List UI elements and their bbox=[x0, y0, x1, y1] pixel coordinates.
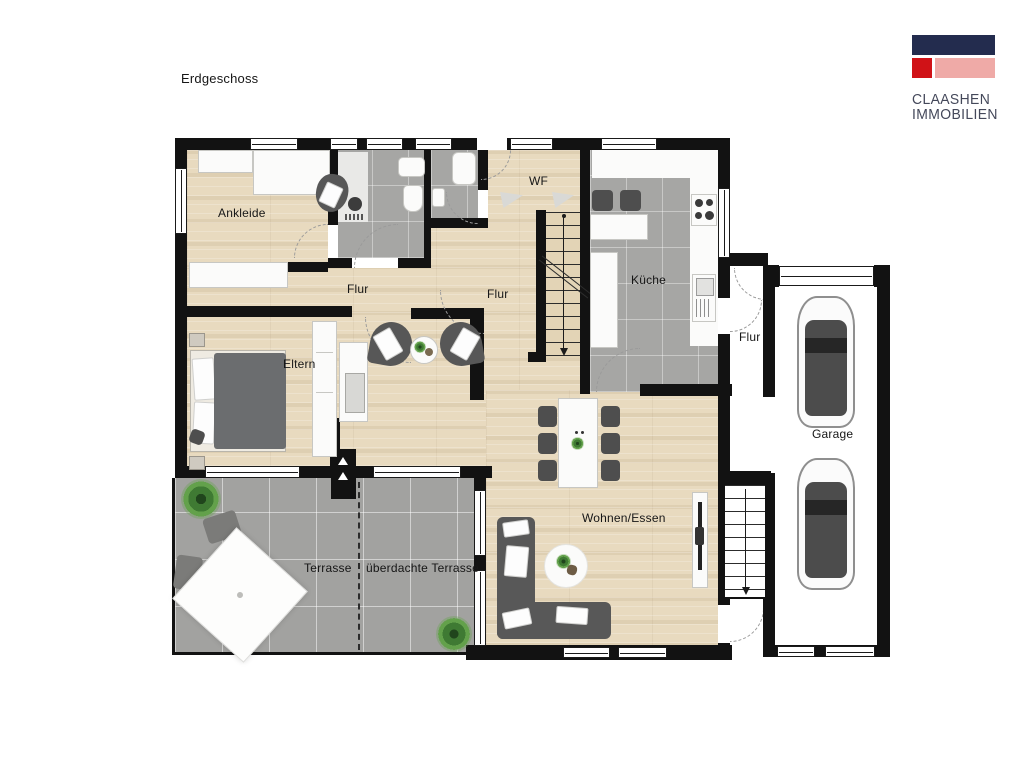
nightstand bbox=[189, 456, 205, 470]
staircase-exterior bbox=[723, 483, 767, 599]
room-label-eltern: Eltern bbox=[283, 357, 316, 371]
window-living-south2 bbox=[618, 647, 667, 658]
dining-plant-icon bbox=[571, 437, 584, 450]
car-cabin bbox=[805, 320, 847, 416]
window-top-bath1b bbox=[366, 138, 403, 150]
flur-sideboard bbox=[189, 262, 288, 288]
sofa-pillow bbox=[504, 545, 530, 578]
bathtub-bath2 bbox=[452, 152, 476, 185]
dining-chair bbox=[538, 406, 557, 427]
sink-drainer bbox=[696, 299, 712, 317]
sink-bath1 bbox=[398, 157, 425, 177]
door-gap-corridor-south bbox=[718, 605, 730, 643]
car-top-view bbox=[797, 458, 855, 590]
room-label-terrasse: Terrasse bbox=[304, 561, 352, 575]
room-label-flur-hall: Flur bbox=[487, 287, 508, 301]
logo-text-line2: IMMOBILIEN bbox=[912, 107, 998, 122]
table-dot bbox=[581, 431, 584, 434]
logo-text-line1: CLAASHEN bbox=[912, 92, 990, 107]
wall-bath2-bottom bbox=[424, 218, 488, 228]
wall-kitchen-left bbox=[580, 150, 590, 394]
ext-stair-arrow-down-icon bbox=[742, 587, 750, 595]
door-arc-corridor-south bbox=[730, 608, 764, 642]
shower-head-icon bbox=[348, 197, 362, 211]
car-windshield bbox=[805, 338, 847, 353]
door-arc-corridor bbox=[730, 300, 762, 332]
window-top-wf bbox=[510, 138, 553, 150]
terrace-roof-edge-line bbox=[358, 482, 360, 650]
page-title: Erdgeschoss bbox=[181, 71, 258, 86]
wall-stairs-landing bbox=[528, 352, 546, 362]
window-top-kitchen bbox=[601, 138, 657, 150]
wall-ext-stairs-top bbox=[721, 471, 771, 483]
terrace-plant-icon bbox=[436, 616, 472, 652]
cooktop bbox=[691, 194, 717, 226]
company-logo: CLAASHEN IMMOBILIEN bbox=[912, 35, 997, 125]
tv-center bbox=[695, 527, 704, 545]
dining-chair bbox=[601, 433, 620, 454]
bar-stool bbox=[620, 190, 641, 211]
window-left-ankleide bbox=[175, 168, 187, 234]
burner-icon bbox=[706, 199, 713, 206]
slider-living-terrace bbox=[373, 466, 461, 478]
chimney-flue-icon bbox=[338, 472, 348, 480]
terrace-edge-left bbox=[172, 478, 175, 655]
room-label-wf: WF bbox=[529, 174, 548, 188]
wall-garage-top-right-stub bbox=[874, 265, 890, 287]
fireplace-column bbox=[339, 342, 368, 422]
wall-bath1-right bbox=[424, 150, 431, 268]
parasol-pole bbox=[236, 591, 244, 599]
shower-drain bbox=[345, 214, 363, 220]
garage-door bbox=[779, 266, 874, 286]
window-top-ankleide bbox=[250, 138, 298, 150]
room-label-garage: Garage bbox=[812, 427, 853, 441]
room-label-flur-upper: Flur bbox=[347, 282, 368, 296]
kitchen-cupboard bbox=[590, 252, 618, 348]
window-top-bath2 bbox=[415, 138, 452, 150]
burner-icon bbox=[705, 211, 714, 220]
window-living-south1 bbox=[563, 647, 610, 658]
logo-pink-bar bbox=[935, 58, 995, 78]
table-dot bbox=[575, 431, 578, 434]
sink-bath2 bbox=[432, 188, 445, 207]
door-gap-ankleide bbox=[328, 225, 338, 258]
kitchen-island bbox=[590, 214, 648, 240]
car-top-view bbox=[797, 296, 855, 428]
wall-eltern-top bbox=[187, 306, 352, 317]
wardrobe-small bbox=[198, 150, 253, 173]
wall-garage-right bbox=[877, 265, 890, 657]
dining-chair bbox=[601, 460, 620, 481]
closet-shelf-line bbox=[316, 392, 333, 393]
window-garage-south1 bbox=[777, 646, 815, 657]
chimney-flue-icon bbox=[338, 457, 348, 465]
window-right-kitchen bbox=[718, 188, 730, 258]
car-cabin bbox=[805, 482, 847, 578]
staircase-main bbox=[546, 212, 580, 358]
logo-navy-bar bbox=[912, 35, 995, 55]
window-eltern-terrace bbox=[205, 466, 300, 478]
nightstand bbox=[189, 333, 205, 347]
dining-chair bbox=[538, 433, 557, 454]
eltern-closet bbox=[312, 321, 337, 457]
terrace-plant-icon bbox=[181, 479, 221, 519]
burner-icon bbox=[695, 199, 703, 207]
burner-icon bbox=[695, 212, 702, 219]
window-garage-south2 bbox=[825, 646, 875, 657]
dining-chair bbox=[601, 406, 620, 427]
kitchen-sink bbox=[692, 274, 716, 322]
door-arc-corridor-top bbox=[734, 268, 766, 300]
room-label-ankleide: Ankleide bbox=[218, 206, 266, 220]
fireplace-insert bbox=[345, 373, 365, 413]
terrace-edge-bottom bbox=[172, 652, 482, 655]
bar-stool bbox=[592, 190, 613, 211]
sofa-pillow bbox=[555, 606, 588, 625]
room-label-ueberdachte-terrasse: überdachte Terrasse bbox=[366, 561, 479, 575]
window-living-west1 bbox=[474, 490, 486, 556]
ext-stair-arrow-line bbox=[745, 489, 746, 589]
wall-garage-top-left-stub bbox=[763, 265, 779, 287]
car-windshield bbox=[805, 500, 847, 515]
closet-shelf-line bbox=[316, 352, 333, 353]
wall-kitchen-bottom bbox=[640, 384, 732, 396]
sink-basin bbox=[696, 278, 714, 296]
door-gap-bath2 bbox=[478, 190, 488, 220]
window-top-bath1a bbox=[330, 138, 358, 150]
bed-blanket bbox=[214, 353, 286, 449]
wall-stairs-left bbox=[536, 210, 546, 360]
room-label-wohnen-essen: Wohnen/Essen bbox=[582, 511, 666, 525]
door-gap-corridor bbox=[718, 298, 730, 334]
logo-red-square bbox=[912, 58, 932, 78]
floorplan-page: Erdgeschoss CLAASHEN IMMOBILIEN bbox=[0, 0, 1024, 768]
window-living-west2 bbox=[474, 570, 486, 646]
room-label-kueche: Küche bbox=[631, 273, 666, 287]
room-label-flur-garage: Flur bbox=[739, 330, 760, 344]
front-door-gap bbox=[477, 138, 507, 150]
stair-arrow-line bbox=[563, 217, 564, 349]
bed-pillow bbox=[192, 357, 217, 400]
wall-stub-ankleide bbox=[288, 262, 328, 272]
stair-arrow-down-icon bbox=[560, 348, 568, 356]
dining-chair bbox=[538, 460, 557, 481]
toilet-bath1 bbox=[403, 185, 423, 212]
